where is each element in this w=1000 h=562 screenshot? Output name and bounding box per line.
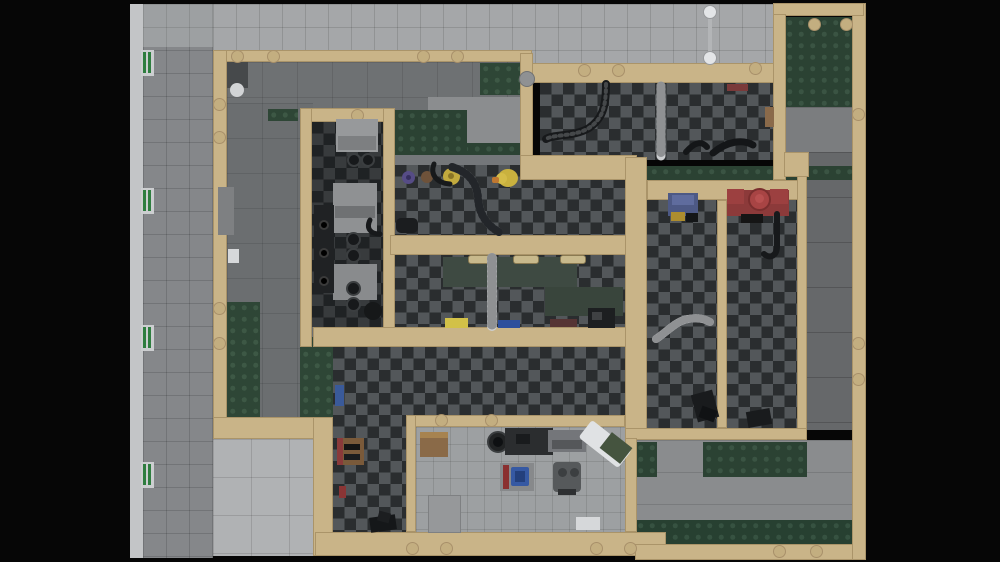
wall-center-rooms: [390, 235, 637, 255]
green-baseplate-top-right: [784, 17, 852, 107]
wall-stud: [852, 337, 865, 350]
room-big-checker: [333, 347, 625, 415]
street-lamp-top: [703, 5, 717, 19]
blue-device-screen: [515, 471, 525, 482]
door-bar: [148, 327, 151, 348]
entry-white-door: [228, 249, 239, 263]
wall-stud: [451, 50, 464, 63]
corridor-top-right: [784, 107, 852, 152]
door-bar: [143, 190, 146, 211]
red-machine-dark-bit: [741, 214, 763, 223]
brown-piece-right-wall: [765, 107, 774, 127]
wall-top-right: [532, 63, 786, 83]
green-strip-bottom: [635, 520, 853, 544]
lamp-fixture: [560, 255, 586, 264]
stove-burner: [319, 276, 329, 286]
office-table-pad: [552, 440, 582, 449]
blue-piece-shelf-room: [335, 385, 344, 406]
wall-stud: [840, 18, 853, 31]
white-door-bottom: [576, 517, 600, 530]
yellow-tile: [445, 318, 468, 328]
wall-stud: [213, 131, 226, 144]
wall-stud: [612, 64, 625, 77]
door-bar: [148, 52, 151, 73]
sidewalk-top-light: [143, 4, 213, 47]
speaker: [361, 153, 375, 167]
kitchen-hose-blob: [364, 302, 382, 320]
street-lamp-pole: [708, 17, 712, 53]
room2-green-patch-a: [443, 257, 577, 287]
shelf-item: [344, 454, 360, 460]
office-chair-stud: [558, 468, 567, 477]
wall-bottom: [315, 532, 666, 556]
door-bar: [143, 327, 146, 348]
fridge-front: [338, 136, 376, 150]
flower-brown: [421, 171, 433, 183]
yellow-bit: [671, 212, 685, 221]
wall-top-right-strip: [773, 3, 864, 16]
speaker: [346, 248, 361, 263]
wall-stud: [435, 414, 448, 427]
wall-stud: [852, 373, 865, 386]
wall-stud: [578, 64, 591, 77]
wall-mid-thick: [520, 155, 637, 180]
door-bar: [143, 464, 146, 485]
entry-wall-machine: [218, 187, 234, 235]
green-block-office-right-a: [635, 442, 657, 477]
wall-stud: [440, 542, 453, 555]
wall-stud: [808, 18, 821, 31]
wall-big-room-top: [313, 327, 637, 347]
black-cart-bit: [592, 312, 602, 320]
wall-stud: [749, 62, 762, 75]
red-machine-right: [770, 189, 788, 204]
wall-bottom-right: [635, 544, 866, 560]
green-block-hall-top: [480, 63, 520, 95]
wall-center-right-vert: [625, 157, 647, 438]
wall-right: [852, 3, 866, 560]
office-gray-box: [428, 495, 461, 533]
wall-stud: [231, 50, 244, 63]
wall-tall-rooms-bottom: [625, 428, 807, 440]
red-book: [503, 465, 509, 489]
green-strip-room1: [395, 143, 467, 155]
door-bar: [148, 464, 151, 485]
rubber-duck-beak: [492, 177, 499, 183]
green-strip-mid: [637, 166, 853, 180]
wall-stud: [624, 542, 637, 555]
wall-office-left: [406, 415, 416, 532]
office-pot-inner: [493, 437, 503, 447]
wall-stud: [213, 302, 226, 315]
stove-burner: [319, 220, 329, 230]
room-tall-right-checker: [727, 200, 797, 428]
lamp-fixture: [513, 255, 539, 264]
kitchen-machine-2-face: [335, 206, 375, 218]
wall-kitchen-left: [300, 108, 312, 347]
green-plate-entry-b: [300, 337, 333, 417]
wall-stud: [267, 50, 280, 63]
blue-tile: [498, 320, 520, 328]
wall-stud: [213, 98, 226, 111]
green-plate-small: [268, 109, 298, 121]
door-bar: [143, 52, 146, 73]
office-chair-base: [558, 489, 576, 495]
wall-step-vert: [520, 53, 533, 157]
corridor-right: [807, 152, 852, 430]
lamp-fixture: [468, 255, 495, 264]
wall-top-left: [213, 50, 532, 62]
speaker: [346, 281, 361, 296]
blue-machine-top: [672, 195, 694, 205]
white-cylinder: [230, 83, 244, 97]
shelf-red-side: [337, 438, 343, 465]
office-desk-item: [516, 434, 530, 444]
wall-stud: [406, 542, 419, 555]
round-gray-piece: [519, 71, 535, 87]
speaker: [347, 153, 361, 167]
room-bottom-left-checker: [333, 415, 406, 532]
office-chair: [553, 462, 581, 492]
green-plate-entry-a: [227, 302, 260, 430]
stove-burner: [319, 248, 329, 258]
red-machine-dome-hl: [755, 194, 764, 203]
wall-stud: [810, 545, 823, 558]
red-piece-shelf-room: [339, 486, 346, 498]
wall-stud: [485, 414, 498, 427]
room-top-center-checker: [540, 83, 773, 160]
door-bar: [148, 190, 151, 211]
office-chair-stud: [570, 468, 579, 477]
wall-corner-block: [784, 152, 809, 177]
wall-bottom-left-jog: [213, 417, 315, 439]
wall-stud: [852, 108, 865, 121]
wall-kitchen-right: [383, 108, 395, 347]
shelf-item: [344, 444, 360, 450]
wall-stud: [213, 337, 226, 350]
flower-purple-center: [406, 175, 411, 180]
wall-stud: [773, 545, 786, 558]
speaker: [346, 297, 361, 312]
dark-red-tile: [550, 319, 577, 327]
wall-corridor-left: [797, 152, 807, 440]
green-block-office-right-b: [703, 442, 807, 477]
black-bit: [686, 213, 698, 222]
speaker: [346, 232, 361, 247]
tool-yellow-center: [448, 173, 454, 179]
wall-stud: [590, 542, 603, 555]
wall-tall-rooms-mid: [717, 200, 727, 428]
street-lamp-base: [703, 51, 717, 65]
red-strip-top-room: [727, 84, 748, 91]
office-cabinet-top: [420, 432, 448, 438]
wall-stud: [417, 50, 430, 63]
red-machine-left: [727, 189, 744, 204]
lego-floorplan-render: [0, 0, 1000, 562]
black-phone-piece: [396, 218, 418, 233]
